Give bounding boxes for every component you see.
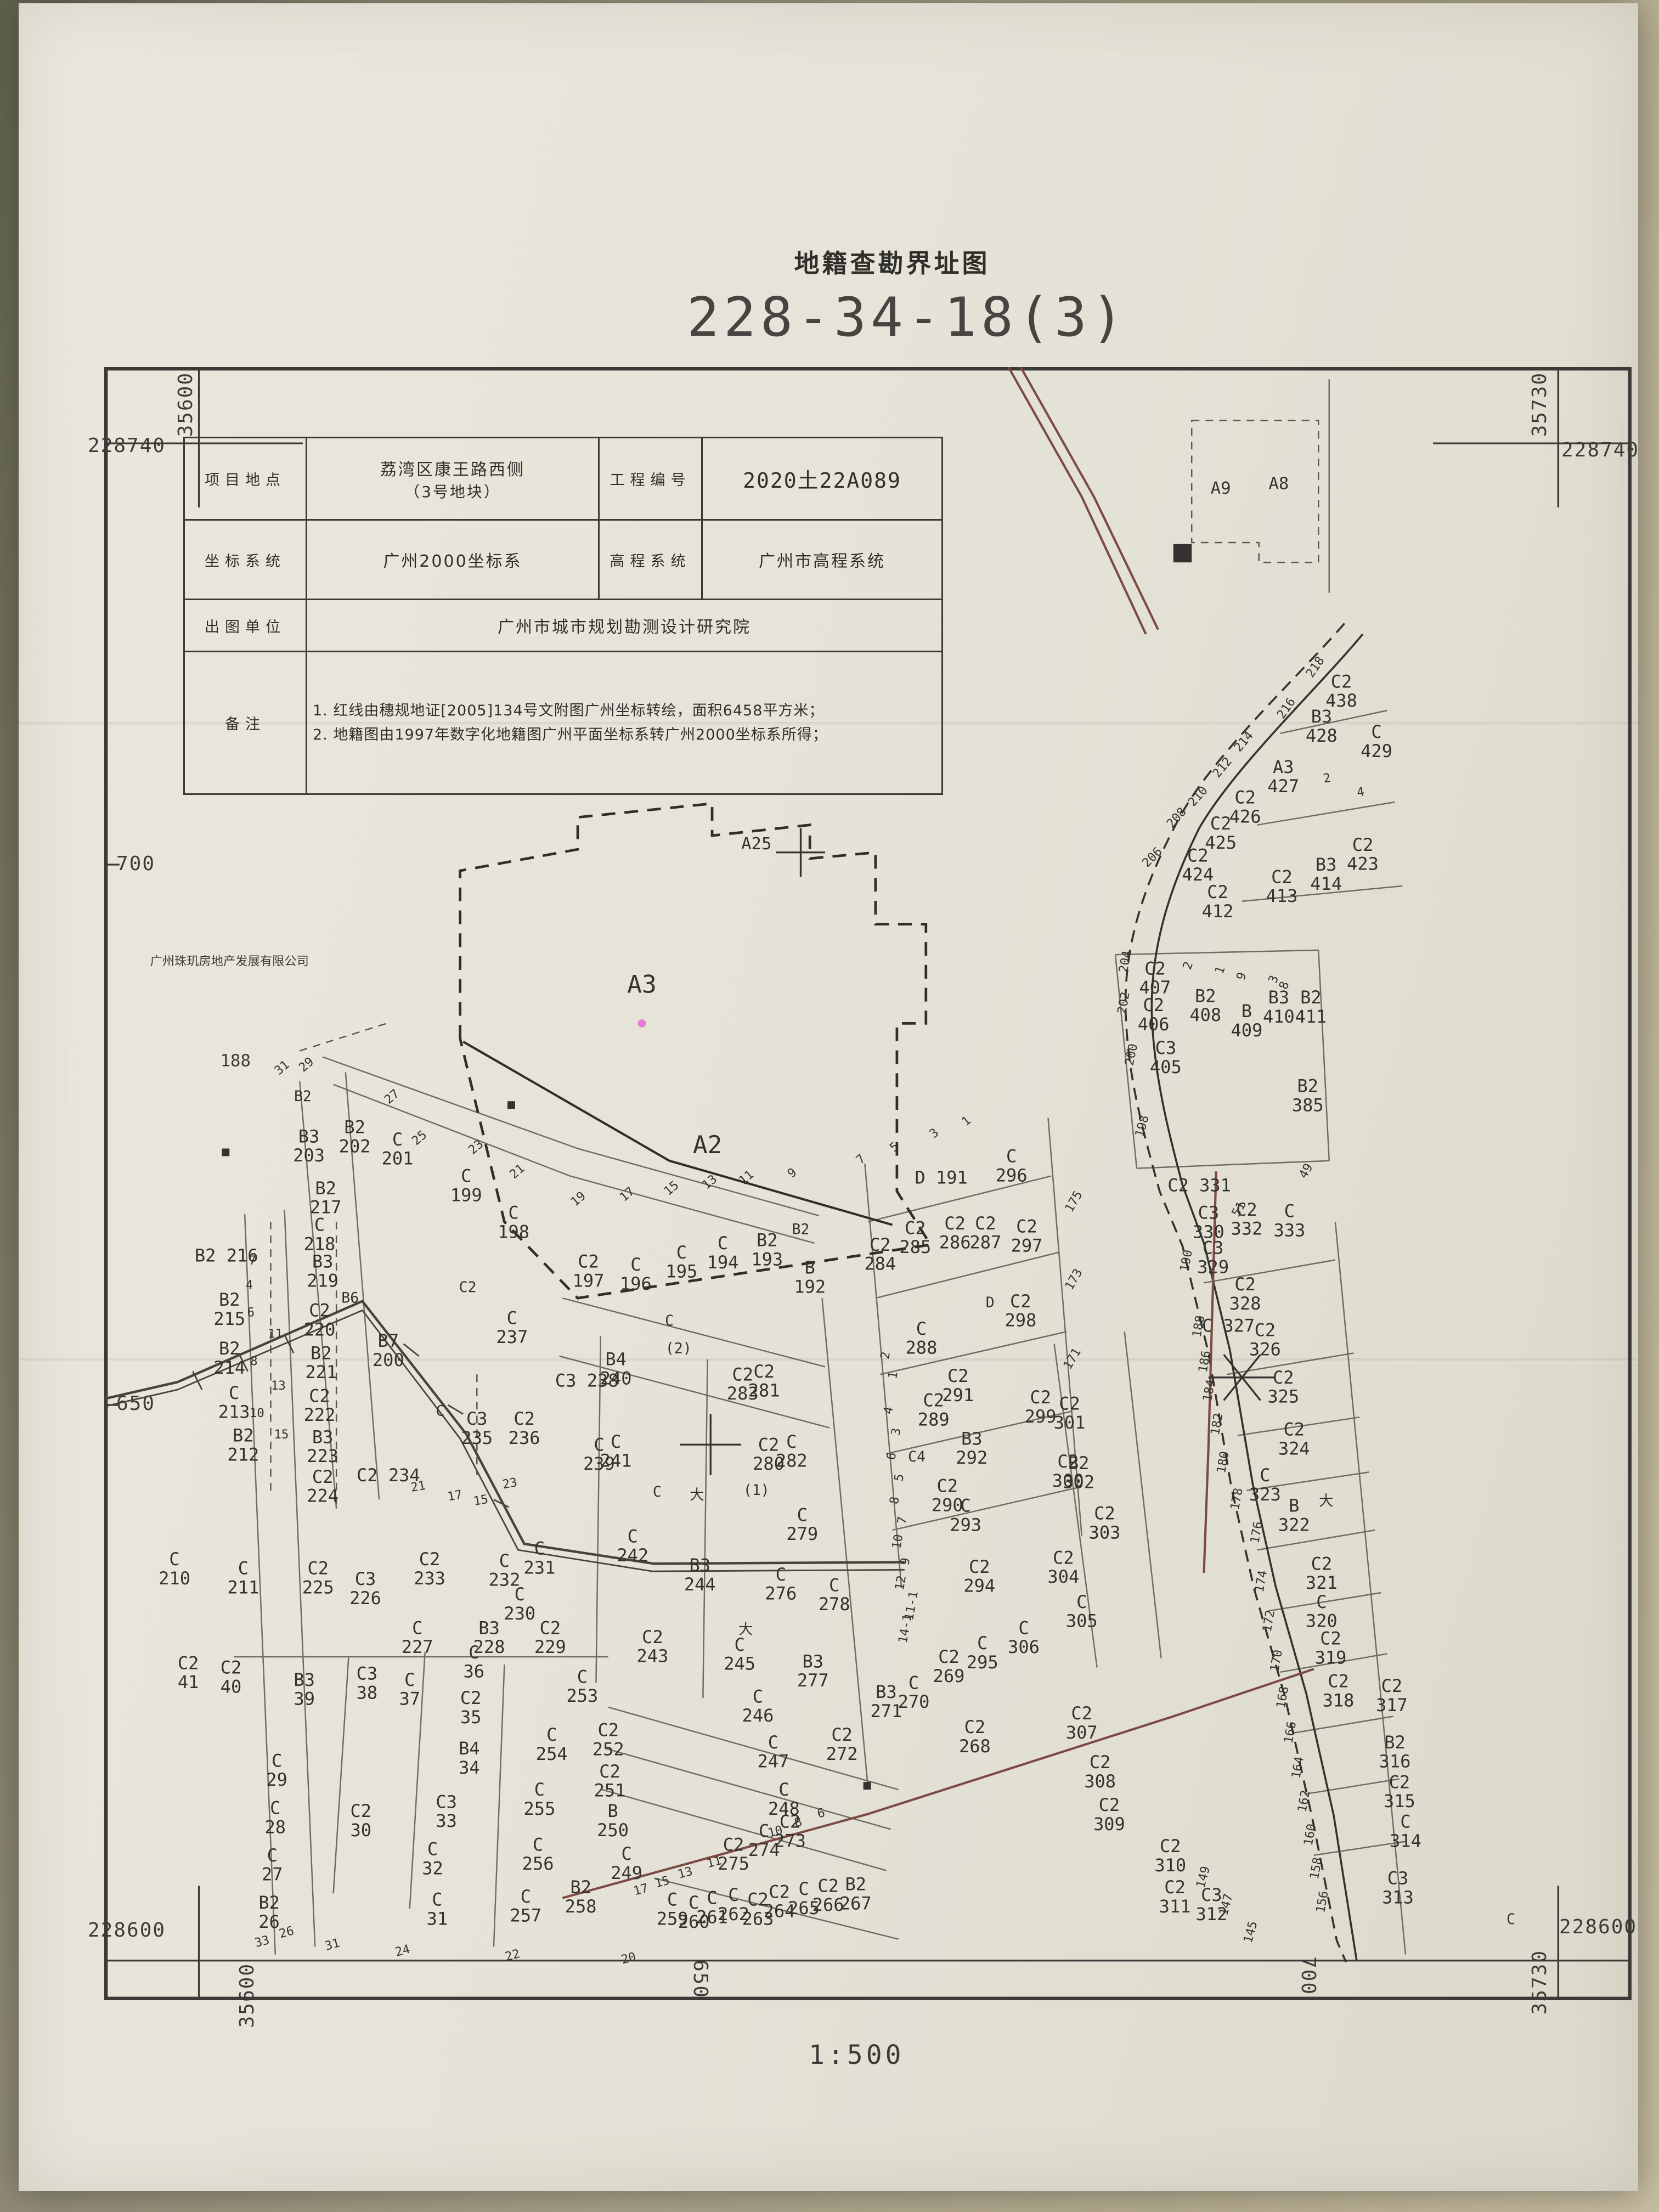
point-number-label: 206 xyxy=(1139,844,1165,870)
parcel-label: C199 xyxy=(450,1166,482,1206)
parcel-label: B409 xyxy=(1231,1001,1263,1041)
parcel-label: C2291 xyxy=(942,1365,974,1406)
parcel-label: C257 xyxy=(510,1886,541,1926)
parcel-label: C194 xyxy=(707,1233,739,1273)
parcel-label: C3329 xyxy=(1197,1237,1229,1277)
parcel-label: C32 xyxy=(422,1839,443,1879)
parcel-label: B2258 xyxy=(565,1877,597,1917)
parcel-label: B3428 xyxy=(1306,706,1338,746)
field-coord-system-value: 广州2000坐标系 xyxy=(307,520,599,600)
parcel-label: C240 xyxy=(221,1657,242,1697)
parcel-label: C2309 xyxy=(1093,1795,1125,1835)
parcel-label: B6 xyxy=(341,1290,359,1307)
point-number-label: 10 xyxy=(889,1533,906,1550)
remark-line-1: 1. 红线由穗规地证[2005]134号文附图广州坐标转绘，面积6458平方米； xyxy=(313,699,936,723)
point-number-label: 17 xyxy=(447,1487,464,1504)
point-number-label: 5 xyxy=(887,1139,902,1155)
point-number-label: 171 xyxy=(1060,1346,1084,1372)
point-number-label: 9 xyxy=(1234,970,1250,982)
parcel-label: C2272 xyxy=(826,1724,858,1764)
parcel-label: C2290 xyxy=(932,1476,963,1516)
point-number-label: 15 xyxy=(661,1178,681,1198)
parcel-label: C2284 xyxy=(864,1234,896,1274)
svg-text:188: 188 xyxy=(221,1051,251,1070)
parcel-label: B2221 xyxy=(305,1342,337,1383)
parcel-label: C305 xyxy=(1066,1592,1098,1632)
parcel-label: C27 xyxy=(262,1845,283,1885)
point-number-label: 172 xyxy=(1260,1609,1278,1633)
field-project-location-label: 项目地点 xyxy=(184,438,307,520)
parcel-label: C2407 xyxy=(1139,958,1171,998)
parcel-label: A25 xyxy=(741,834,771,854)
parcel-label: C2280 xyxy=(753,1434,785,1474)
parcel-label: C198 xyxy=(498,1203,529,1243)
point-number-label: 13 xyxy=(676,1864,695,1882)
point-number-label: 198 xyxy=(1132,1114,1152,1139)
point-number-label: 3 xyxy=(927,1126,941,1142)
parcel-label: C2243 xyxy=(637,1627,669,1667)
parcel-label: B250 xyxy=(597,1801,629,1841)
point-number-label: 156 xyxy=(1313,1890,1331,1914)
landowner-annotation: 广州珠玑房地产发展有限公司 188 xyxy=(150,955,309,1071)
parcel-label: B2 xyxy=(294,1088,312,1105)
parcel-label: C255 xyxy=(524,1779,556,1819)
parcel-label: C196 xyxy=(620,1254,652,1294)
parcel-label: C2299 xyxy=(1025,1387,1057,1427)
point-number-label: 7 xyxy=(854,1152,868,1167)
parcel-label: C247 xyxy=(757,1732,789,1772)
parcel-label: C29 xyxy=(266,1750,287,1790)
parcel-label: C2413 xyxy=(1266,866,1298,906)
parcel-label: C213 xyxy=(218,1383,250,1423)
parcel-label: C254 xyxy=(536,1724,568,1764)
parcel-label: C278 xyxy=(819,1575,850,1615)
parcel-label: C2310 xyxy=(1154,1836,1186,1876)
parcel-label: C242 xyxy=(617,1526,648,1566)
parcel-label: B3203 xyxy=(293,1126,325,1166)
parcel-label: B2 xyxy=(792,1221,810,1238)
parcel-label: C2423 xyxy=(1347,834,1379,874)
point-number-label: 158 xyxy=(1307,1856,1325,1880)
parcel-label: C2406 xyxy=(1138,995,1170,1035)
point-number-label: 176 xyxy=(1248,1520,1266,1544)
parcel-label: A3 xyxy=(627,971,657,999)
parcel-label: 大 xyxy=(690,1486,704,1503)
parcel-label: C2321 xyxy=(1306,1553,1338,1593)
point-number-label: 210 xyxy=(1186,783,1211,809)
parcel-label: B2316 xyxy=(1379,1732,1411,1772)
parcel-label: C296 xyxy=(996,1146,1028,1186)
parcel-label: A9 xyxy=(1211,479,1231,498)
parcel-label: (1) xyxy=(743,1482,770,1499)
point-number-label: 25 xyxy=(409,1128,430,1148)
parcel-label: A3427 xyxy=(1267,757,1299,797)
parcel-label: C288 xyxy=(906,1318,938,1358)
point-number-label: 2 xyxy=(878,1351,893,1361)
parcel-label: B226 xyxy=(258,1892,280,1932)
point-number-label: 166 xyxy=(1282,1720,1300,1745)
point-number-label: 22 xyxy=(504,1946,522,1964)
field-issuer-value: 广州市城市规划勘测设计研究院 xyxy=(307,600,943,652)
parcel-label: B2217 xyxy=(310,1178,342,1218)
parcel-label: C241 xyxy=(600,1431,632,1471)
parcel-label: C2297 xyxy=(1011,1216,1043,1256)
point-number-label: 23 xyxy=(501,1475,518,1492)
parcel-label: C338 xyxy=(357,1663,378,1703)
point-number-label: 31 xyxy=(272,1058,292,1078)
parcel-label: C2222 xyxy=(304,1385,336,1425)
field-remarks-label: 备注 xyxy=(184,652,307,794)
parcel-label: C2298 xyxy=(1005,1291,1036,1331)
parcel-label: C xyxy=(436,1402,445,1419)
parcel-label: C3235 xyxy=(461,1408,493,1448)
point-number-label: 180 xyxy=(1214,1450,1232,1474)
parcel-label: C xyxy=(1506,1911,1515,1928)
parcel-label: C2303 xyxy=(1089,1503,1121,1543)
parcel-label: C2197 xyxy=(573,1251,605,1291)
parcel-label: C2412 xyxy=(1202,882,1234,922)
point-number-label: 5 xyxy=(891,1472,907,1482)
parcel-label: C323 xyxy=(1249,1465,1281,1505)
parcel-label: C3405 xyxy=(1150,1037,1182,1077)
parcel-label: B192 xyxy=(794,1257,826,1297)
parcel-label: B2302 xyxy=(1063,1453,1094,1493)
parcel-label: B3292 xyxy=(956,1428,988,1468)
point-number-label: 204 xyxy=(1116,950,1135,974)
point-number-label: 21 xyxy=(507,1161,527,1182)
parcel-label: C2315 xyxy=(1384,1771,1415,1812)
parcel-label: C2225 xyxy=(302,1558,334,1598)
parcel-label: B3277 xyxy=(797,1651,829,1691)
parcel-label: D xyxy=(986,1294,995,1311)
svg-text:广州珠玑房地产发展有限公司: 广州珠玑房地产发展有限公司 xyxy=(150,955,309,969)
parcel-label: C2438 xyxy=(1325,671,1357,711)
parcel-label: A2 xyxy=(693,1131,723,1159)
field-issuer-label: 出图单位 xyxy=(184,600,307,652)
point-number-label: 174 xyxy=(1252,1569,1271,1593)
parcel-label: B2215 xyxy=(213,1289,245,1329)
parcel-label: C2426 xyxy=(1229,787,1261,827)
field-remarks-value: 1. 红线由穗规地证[2005]134号文附图广州坐标转绘，面积6458平方米；… xyxy=(307,652,943,794)
parcel-label: (2) xyxy=(665,1340,692,1357)
parcel-label: B3414 xyxy=(1310,854,1342,894)
parcel-label: C2325 xyxy=(1267,1367,1299,1407)
point-number-label: 24 xyxy=(394,1942,412,1960)
parcel-label: B2202 xyxy=(339,1117,371,1157)
point-number-label: 164 xyxy=(1289,1756,1307,1780)
parcel-label: C320 xyxy=(1306,1592,1338,1632)
point-number-label: 33 xyxy=(253,1933,271,1950)
parcel-label: C2301 xyxy=(1054,1393,1086,1433)
point-number-label: 13 xyxy=(271,1379,286,1393)
parcel-label: C306 xyxy=(1008,1617,1040,1657)
parcel-label: C256 xyxy=(522,1834,554,1874)
point-number-label: 178 xyxy=(1228,1487,1246,1511)
point-number-label: 4 xyxy=(881,1406,896,1415)
point-number-label: 15 xyxy=(274,1427,289,1442)
point-number-label: 49 xyxy=(1296,1161,1316,1181)
point-number-label: 1 xyxy=(1212,964,1228,976)
point-number-label: 1 xyxy=(885,1370,901,1380)
parcel-label: C314 xyxy=(1390,1812,1421,1852)
parcel-label: A8 xyxy=(1268,475,1289,494)
parcel-label: C2220 xyxy=(304,1300,336,1340)
point-number-label: 2 xyxy=(1322,771,1332,786)
parcel-label: C xyxy=(653,1483,662,1500)
point-number-label: 21 xyxy=(410,1479,427,1495)
parcel-label: B322 xyxy=(1278,1496,1310,1536)
map-scale: 1:500 xyxy=(809,2040,905,2070)
parcel-label: C2287 xyxy=(969,1213,1001,1253)
parcel-label: C2 xyxy=(459,1279,477,1296)
parcel-label: C211 xyxy=(227,1558,259,1598)
parcel-label: C3226 xyxy=(349,1568,381,1609)
parcel-label: B2408 xyxy=(1189,985,1221,1025)
parcel-label: C31 xyxy=(427,1889,448,1929)
parcel-label: C2251 xyxy=(594,1761,626,1801)
point-number-label: 15 xyxy=(653,1874,672,1891)
field-project-number-value: 2020土22A089 xyxy=(702,438,943,520)
parcel-label: C279 xyxy=(786,1504,818,1544)
sheet-title: 地籍查勘界址图 xyxy=(727,244,1057,280)
parcel-label: B7200 xyxy=(373,1330,404,1370)
point-number-label: 3 xyxy=(889,1427,904,1437)
parcel-label: C2268 xyxy=(959,1717,991,1757)
parcel-label: C37 xyxy=(399,1669,421,1709)
parcel-label: C2269 xyxy=(933,1646,965,1686)
parcel-label: C201 xyxy=(382,1129,414,1169)
parcel-label: C246 xyxy=(742,1686,774,1726)
point-number-label: 170 xyxy=(1267,1649,1285,1673)
parcel-label: C2328 xyxy=(1229,1274,1261,1314)
point-number-label: 12 xyxy=(893,1575,909,1592)
parcel-label: B3244 xyxy=(684,1555,716,1595)
point-number-label: 173 xyxy=(1062,1266,1086,1293)
point-number-label: 214 xyxy=(1231,729,1256,754)
parcel-label: C2229 xyxy=(534,1617,566,1657)
point-number-label: 14-1 xyxy=(896,1613,915,1644)
parcel-label: C295 xyxy=(967,1633,998,1673)
parcel-label: B3410 xyxy=(1263,987,1295,1027)
point-number-label: 19 xyxy=(568,1189,588,1209)
parcel-label: C333 xyxy=(1273,1201,1305,1241)
title-block-table: 项目地点 荔湾区康王路西侧 （3号地块） 工程编号 2020土22A089 坐标… xyxy=(183,437,943,795)
parcel-label: C270 xyxy=(898,1672,930,1712)
point-number-label: 175 xyxy=(1062,1188,1086,1215)
project-location-line2: （3号地块） xyxy=(313,480,592,502)
point-number-label: 6 xyxy=(816,1805,827,1821)
point-number-label: 31 xyxy=(323,1936,341,1954)
parcel-label: C218 xyxy=(304,1215,336,1255)
parcel-label: C429 xyxy=(1361,721,1392,761)
parcel-label: B2411 xyxy=(1295,987,1327,1027)
point-number-label: 7 xyxy=(895,1515,910,1525)
parcel-label: B4240 xyxy=(600,1349,632,1389)
parcel-label: C235 xyxy=(460,1688,482,1728)
parcel-label: C3330 xyxy=(1193,1203,1224,1243)
photo-of-cadastral-sheet: { "title": { "cn": "地籍查勘界址图", "code": "2… xyxy=(0,0,1659,2212)
parcel-label: B2267 xyxy=(840,1874,872,1914)
parcel-label: B2214 xyxy=(213,1338,245,1378)
parcel-label: C237 xyxy=(496,1307,528,1347)
parcel-label: C2317 xyxy=(1376,1675,1408,1716)
project-location-line1: 荔湾区康王路西侧 xyxy=(380,460,525,479)
point-number-label: 17 xyxy=(632,1881,650,1898)
point-number-label: 168 xyxy=(1274,1685,1292,1709)
parcel-label: C3313 xyxy=(1382,1868,1414,1908)
parcel-label: C 327 xyxy=(1202,1315,1255,1336)
point-number-label: 6 xyxy=(884,1451,899,1461)
point-number-label: 182 xyxy=(1208,1412,1226,1436)
point-number-label: 26 xyxy=(278,1923,296,1941)
parcel-label: D 191 xyxy=(915,1167,967,1188)
parcel-label: C249 xyxy=(611,1843,642,1883)
point-number-label: 218 xyxy=(1303,654,1327,680)
parcel-label: C2275 xyxy=(718,1834,749,1874)
sheet-number: 228-34-18(3) xyxy=(600,286,1215,349)
parcel-label: C333 xyxy=(436,1791,457,1831)
point-number-label: 2 xyxy=(1180,960,1196,971)
point-number-label: 10 xyxy=(250,1406,264,1420)
point-number-label: 1 xyxy=(959,1113,974,1129)
parcel-label: C2318 xyxy=(1323,1671,1355,1711)
point-number-label: 4 xyxy=(246,1278,253,1292)
magenta-marker-dot xyxy=(638,1019,646,1027)
zone-a3-boundary xyxy=(460,804,930,1298)
point-number-label: 9 xyxy=(785,1165,799,1181)
parcel-label: C2281 xyxy=(748,1361,780,1401)
point-number-label: 212 xyxy=(1210,754,1235,780)
remark-line-2: 2. 地籍图由1997年数字化地籍图广州平面坐标系转广州2000坐标系所得； xyxy=(313,723,936,747)
parcel-label: B339 xyxy=(294,1669,315,1709)
point-number-label: 6 xyxy=(247,1306,255,1320)
point-number-label: 190 xyxy=(1177,1249,1195,1273)
parcel-label: C2326 xyxy=(1249,1320,1281,1360)
point-number-label: 7 xyxy=(249,1254,256,1268)
point-number-label: 15 xyxy=(472,1492,489,1509)
parcel-label: C2233 xyxy=(414,1549,445,1589)
parcel-label: C xyxy=(665,1312,674,1329)
parcel-label: C210 xyxy=(159,1549,190,1589)
parcel-label: C2252 xyxy=(592,1720,624,1760)
parcel-label: C2308 xyxy=(1084,1752,1116,1792)
parcel-label: 大 xyxy=(1319,1493,1333,1510)
parcel-label: C2286 xyxy=(939,1213,971,1253)
parcel-label: C2319 xyxy=(1315,1628,1347,1668)
point-number-label: 23 xyxy=(466,1137,486,1157)
parcel-label: B2385 xyxy=(1292,1076,1324,1116)
parcel-label: C4 xyxy=(908,1448,926,1465)
field-project-location-value: 荔湾区康王路西侧 （3号地块） xyxy=(307,438,599,520)
parcel-label: C2311 xyxy=(1159,1877,1191,1917)
parcel-label: C2294 xyxy=(963,1556,995,1596)
parcel-label: C227 xyxy=(402,1617,433,1657)
point-number-label: 17 xyxy=(617,1184,637,1205)
field-coord-system-label: 坐标系统 xyxy=(184,520,307,600)
point-number-label: 4 xyxy=(1356,785,1365,800)
parcel-label: C241 xyxy=(178,1652,199,1692)
point-number-label: 145 xyxy=(1241,1920,1261,1945)
parcel-label: C2 331 xyxy=(1167,1175,1231,1195)
parcel-label: C28 xyxy=(265,1798,286,1838)
parcel-label: C2285 xyxy=(899,1217,931,1257)
point-number-label: 8 xyxy=(887,1496,902,1505)
point-number-label: 29 xyxy=(296,1054,317,1075)
point-number-label: 202 xyxy=(1115,991,1133,1015)
point-number-label: 8 xyxy=(250,1355,257,1369)
parcel-label: B2193 xyxy=(751,1230,783,1270)
field-height-system-label: 高程系统 xyxy=(599,520,702,600)
parcel-label: B434 xyxy=(459,1738,480,1778)
field-height-system-value: 广州市高程系统 xyxy=(702,520,943,600)
point-number-label: 11 xyxy=(268,1327,283,1341)
parcel-label: B3219 xyxy=(307,1251,338,1291)
field-project-number-label: 工程编号 xyxy=(599,438,702,520)
parcel-label: C2236 xyxy=(509,1408,540,1448)
parcel-label: C195 xyxy=(665,1242,697,1282)
parcel-label: C2304 xyxy=(1047,1547,1079,1587)
parcel-label: C230 xyxy=(350,1801,371,1841)
parcel-label: C253 xyxy=(566,1666,598,1706)
parcel-label: C2307 xyxy=(1066,1703,1098,1743)
point-number-label: 20 xyxy=(620,1950,638,1967)
parcel-label: C245 xyxy=(724,1634,755,1674)
parcel-label: B3223 xyxy=(307,1426,338,1466)
paper-sheet: 地籍查勘界址图 228-34-18(3) 228740 35600 228740… xyxy=(19,3,1638,2191)
point-number-label: 216 xyxy=(1274,695,1298,721)
